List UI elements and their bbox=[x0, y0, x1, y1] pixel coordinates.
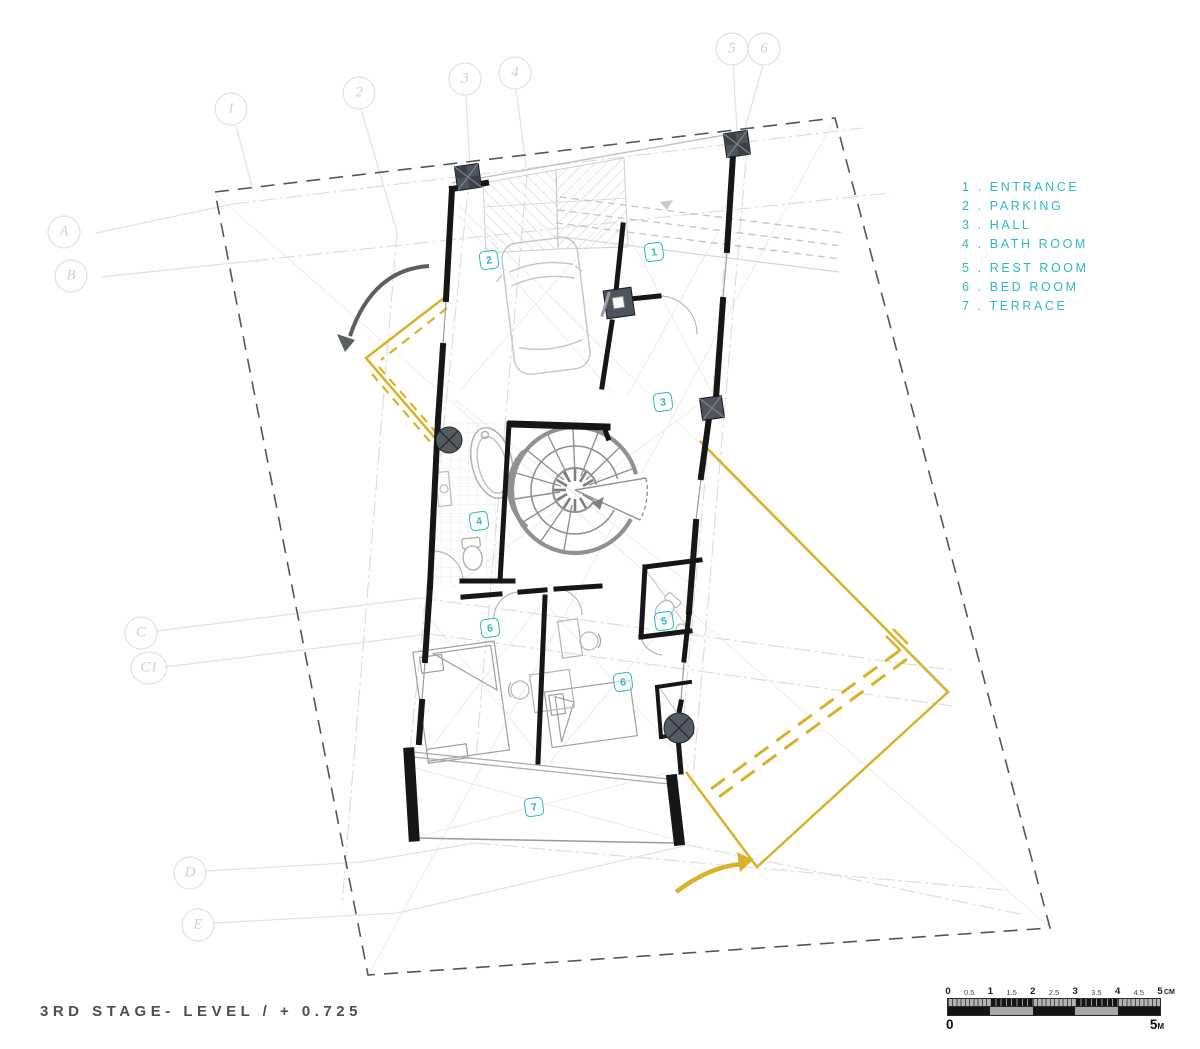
scale-cm-segment bbox=[948, 999, 990, 1006]
scale-cm-unit: CM bbox=[1164, 989, 1175, 996]
scale-cm-segment bbox=[1033, 999, 1075, 1006]
scale-m-segment bbox=[1075, 1007, 1117, 1015]
scale-bar-m-labels: 0 5M bbox=[948, 1017, 1160, 1033]
room-tag-5: 5 bbox=[653, 610, 674, 631]
scale-cm-label-0: 0 bbox=[945, 986, 950, 997]
car bbox=[492, 235, 593, 376]
scale-cm-segment bbox=[990, 999, 1032, 1006]
legend-item-5: 5 . REST ROOM bbox=[962, 259, 1089, 278]
scale-bar-m-row bbox=[948, 1007, 1160, 1015]
legend-item-4: 4 . BATH ROOM bbox=[962, 235, 1089, 254]
scale-cm-segment bbox=[1118, 999, 1160, 1006]
grid-bubble-B: B bbox=[55, 260, 88, 293]
grid-bubble-E: E bbox=[182, 909, 215, 942]
legend: 1 . ENTRANCE2 . PARKING3 . HALL4 . BATH … bbox=[962, 178, 1089, 316]
room-tag-4: 4 bbox=[468, 510, 489, 531]
scale-cm-label-1: 1 bbox=[988, 986, 993, 997]
room-tag-3: 3 bbox=[652, 391, 673, 412]
scale-cm-label-2.5: 2.5 bbox=[1049, 988, 1059, 997]
scale-m-left: 0 bbox=[946, 1017, 954, 1032]
room-tag-7: 7 bbox=[523, 796, 544, 817]
scale-cm-label-0.5: 0.5 bbox=[964, 988, 974, 997]
scale-cm-label-3: 3 bbox=[1073, 986, 1078, 997]
grid-bubble-3: 3 bbox=[449, 63, 482, 96]
grid-bubble-C: C bbox=[125, 617, 158, 650]
legend-item-7: 7 . TERRACE bbox=[962, 297, 1089, 316]
grid-bubble-5: 5 bbox=[716, 33, 749, 66]
drawing-title: 3RD STAGE- LEVEL / + 0.725 bbox=[40, 1003, 362, 1020]
scale-cm-label-4.5: 4.5 bbox=[1134, 988, 1144, 997]
legend-item-6: 6 . BED ROOM bbox=[962, 278, 1089, 297]
floor-plan-canvas: 123456ABCC1DE 21346567 1 . ENTRANCE2 . P… bbox=[0, 0, 1200, 1049]
scale-bar: 00.511.522.533.544.55CM 0 5M bbox=[948, 986, 1160, 1034]
grid-bubble-4: 4 bbox=[499, 57, 532, 90]
spiral-staircase bbox=[509, 427, 652, 553]
room-tag-6: 6 bbox=[479, 617, 500, 638]
legend-items: 1 . ENTRANCE2 . PARKING3 . HALL4 . BATH … bbox=[962, 178, 1089, 316]
room-tag-1: 1 bbox=[643, 241, 664, 262]
plan-drawing bbox=[0, 0, 1200, 1049]
grid-bubble-C1: C1 bbox=[131, 652, 168, 685]
scale-bar-cm-labels: 00.511.522.533.544.55CM bbox=[948, 986, 1160, 997]
legend-item-2: 2 . PARKING bbox=[962, 197, 1089, 216]
grid-bubble-2: 2 bbox=[343, 77, 376, 110]
grid-bubble-A: A bbox=[48, 216, 81, 249]
scale-m-right: 5M bbox=[1150, 1017, 1164, 1032]
construction-lines bbox=[216, 120, 1048, 972]
scale-m-segment bbox=[990, 1007, 1032, 1015]
scale-cm-segment bbox=[1075, 999, 1117, 1006]
terrace-arrow-yellow bbox=[676, 852, 753, 892]
grid-bubble-6: 6 bbox=[748, 33, 781, 66]
ramp-arrow-dark bbox=[337, 266, 429, 352]
scale-cm-label-1.5: 1.5 bbox=[1006, 988, 1016, 997]
scale-cm-label-5: 5 bbox=[1157, 986, 1162, 997]
scale-cm-label-4: 4 bbox=[1115, 986, 1120, 997]
room-tag-2: 2 bbox=[478, 249, 499, 270]
scale-cm-label-2: 2 bbox=[1030, 986, 1035, 997]
scale-m-segment bbox=[1118, 1007, 1160, 1015]
scale-m-segment bbox=[948, 1007, 990, 1015]
scale-m-segment bbox=[1033, 1007, 1075, 1015]
scale-cm-label-3.5: 3.5 bbox=[1091, 988, 1101, 997]
scale-bar-cm-row bbox=[948, 999, 1160, 1006]
room-tag-6: 6 bbox=[612, 671, 633, 692]
legend-item-1: 1 . ENTRANCE bbox=[962, 178, 1089, 197]
grid-bubble-1: 1 bbox=[215, 93, 248, 126]
bubble-leaders bbox=[96, 64, 763, 923]
legend-item-3: 3 . HALL bbox=[962, 216, 1089, 235]
grid-bubble-D: D bbox=[174, 857, 207, 890]
